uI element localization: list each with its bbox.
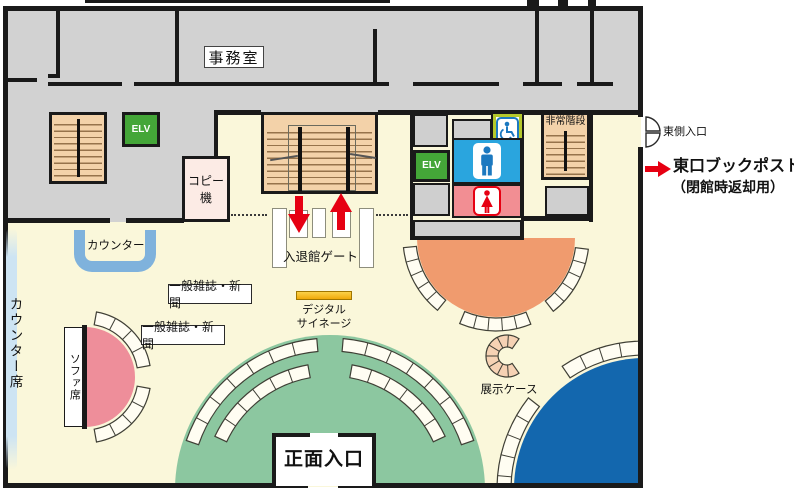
west-staircase <box>49 112 107 184</box>
digital-signage <box>296 291 352 300</box>
gate-entry-arrow-shaft <box>337 212 345 230</box>
female-restroom <box>452 184 522 218</box>
book-post-arrow-shaft <box>645 166 659 172</box>
gate-label: 入退館ゲート <box>283 250 358 264</box>
elevator-east: ELV <box>413 150 450 182</box>
left-wing-right-wall <box>214 112 218 158</box>
male-restroom <box>452 138 522 184</box>
counter-seats-label: カウンター席 <box>7 297 23 390</box>
office-corridor-wall-e <box>577 82 613 86</box>
right-outer-wall-lower <box>638 147 643 488</box>
utility-box-3 <box>413 183 450 216</box>
female-restroom-icon <box>473 186 501 216</box>
magazines-label-1: 一般雑誌・新聞 <box>169 277 251 311</box>
left-wing-bottom-wall-a <box>3 218 110 223</box>
office-partition-v3 <box>373 29 377 84</box>
sofa-seats-box: ソファ席 <box>64 327 84 427</box>
main-entrance-label: 正面入口 <box>276 449 372 471</box>
top-outer-wall <box>3 6 643 11</box>
book-post-arrow-right-icon <box>658 161 671 177</box>
left-wing-bottom-wall-b <box>126 218 184 223</box>
male-restroom-icon <box>472 142 502 180</box>
magazines-label-box-1: 一般雑誌・新聞 <box>168 284 252 304</box>
main-entrance-vestibule: 正面入口 <box>272 433 376 486</box>
book-post-label-2: （閉館時返却用） <box>672 179 784 195</box>
office-corridor-wall-a <box>48 82 122 86</box>
book-post-label-1: 東口ブックポスト <box>673 158 794 176</box>
sofa-seats-label: ソファ席 <box>68 353 81 401</box>
elevator-east-label: ELV <box>422 160 441 172</box>
office-partition-hleft <box>3 78 37 82</box>
east-entrance-label: 東側入口 <box>663 126 707 139</box>
display-case-label: 展示ケース <box>474 384 544 397</box>
emergency-zone-right-wall <box>589 112 593 222</box>
office-partition-v4 <box>535 11 539 84</box>
gate-entry-arrow-up-icon <box>330 193 352 212</box>
digital-signage-label-2: サイネージ <box>288 318 360 331</box>
gate-exit-arrow-down-icon <box>288 214 310 233</box>
copy-machine-label-2: 機 <box>200 189 212 206</box>
utility-box-4 <box>545 186 589 216</box>
central-staircase-rail-right <box>346 127 350 191</box>
gate-pillar-5 <box>359 208 374 268</box>
magazines-label-box-2: 一般雑誌・新聞 <box>141 325 225 345</box>
emergency-zone-bottom-wall <box>523 216 593 221</box>
counter-label: カウンター <box>87 240 145 253</box>
bottom-outer-wall-west <box>3 483 308 488</box>
gate-exit-arrow-shaft <box>295 196 303 214</box>
utility-box-1 <box>413 114 448 147</box>
top-stub-c <box>588 0 596 6</box>
copy-machine-room: コピー 機 <box>182 156 230 222</box>
digital-signage-label-1: デジタル <box>296 304 352 317</box>
office-zone <box>6 9 641 112</box>
emergency-staircase-rail <box>564 131 567 171</box>
office-partition-jog <box>48 74 60 78</box>
east-door-swing-icon <box>646 117 660 147</box>
copy-machine-label-1: コピー <box>188 172 224 189</box>
sofa-back-wall <box>82 325 87 429</box>
utility-bar <box>413 220 522 238</box>
west-staircase-rail <box>77 119 80 177</box>
emergency-staircase-label: 非常階段 <box>544 116 587 128</box>
office-corridor-wall-b <box>134 82 389 86</box>
office-label: 事務室 <box>208 47 259 68</box>
elevator-west-label: ELV <box>132 124 151 136</box>
gate-security-line-east <box>376 214 408 216</box>
floor-plan: 事務室 ELV コピー 機 ELV <box>0 0 794 495</box>
main-entrance-top-wall-a <box>276 433 310 437</box>
central-staircase-rail-left <box>298 127 302 191</box>
office-partition-v2 <box>175 11 179 84</box>
magazines-label-2: 一般雑誌・新聞 <box>142 318 224 352</box>
top-stub-b <box>558 0 568 6</box>
central-staircase <box>261 112 378 194</box>
boundary-wall-west <box>214 110 261 115</box>
office-corridor-wall-d <box>523 82 562 86</box>
office-partition-v1 <box>56 11 60 78</box>
bottom-outer-wall-east <box>338 483 643 488</box>
main-entrance-top-wall-b <box>338 433 372 437</box>
office-zone-left-wing <box>6 112 216 158</box>
top-stub-a <box>527 0 539 6</box>
elevator-west: ELV <box>122 112 160 147</box>
gate-security-line-west <box>231 214 267 216</box>
right-outer-wall-upper <box>638 6 643 117</box>
top-stub-wall <box>85 0 390 3</box>
emergency-staircase: 非常階段 <box>541 112 590 180</box>
office-corridor-wall-c <box>413 82 499 86</box>
gate-pillar-3 <box>312 208 326 238</box>
office-partition-v5 <box>590 11 594 84</box>
office-label-box: 事務室 <box>204 46 264 68</box>
